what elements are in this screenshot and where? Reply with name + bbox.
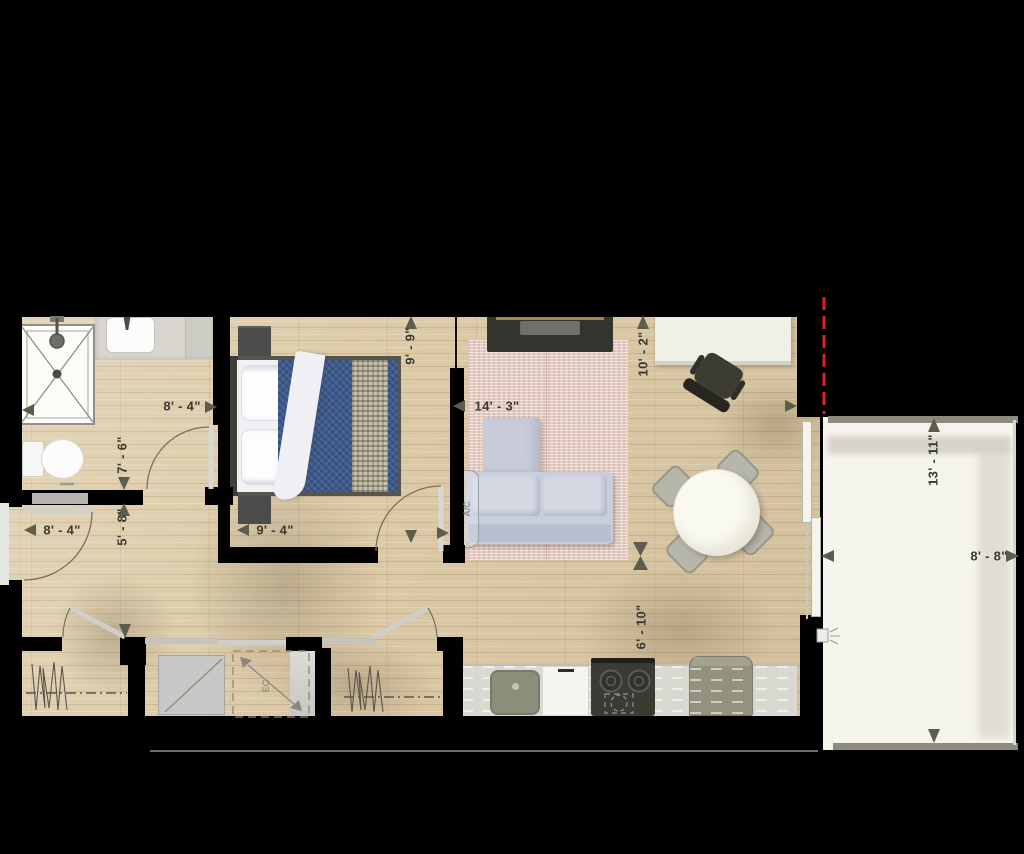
arrow-left-icon	[24, 524, 36, 536]
dim-balcony-length: 13' - 11"	[926, 434, 941, 486]
arrow-right-icon	[1006, 550, 1019, 562]
dim-living-width: 14' - 3"	[475, 399, 520, 414]
arrow-right-icon	[205, 401, 217, 413]
dimension-arrows	[22, 315, 1019, 743]
plant-icon	[641, 701, 649, 709]
closet-door-leaf	[70, 608, 125, 637]
arrow-up-icon	[633, 556, 648, 570]
arrow-down-icon	[118, 477, 130, 490]
dim-living-length: 10' - 2"	[636, 332, 651, 377]
washer-diagonal	[165, 659, 222, 712]
arrow-right-icon	[785, 400, 797, 412]
office-chair	[680, 347, 750, 415]
dim-bathroom-width: 8' - 4"	[163, 399, 200, 414]
arrow-down-icon	[928, 729, 940, 743]
ac-unit-label: A/C	[462, 501, 472, 517]
closet-door-leaf	[373, 608, 428, 637]
closet-door-arc	[63, 608, 70, 637]
arrow-left-icon	[237, 524, 249, 536]
dim-hall-length: 5' - 8"	[115, 508, 130, 545]
closet-door-arc	[428, 608, 437, 637]
dim-bedroom-length: 9' - 9"	[403, 327, 418, 364]
hanging-clothes-icon	[348, 666, 383, 712]
floor-plan: 8' - 4" 7' - 6" 5' - 8" 8' - 4" 9' - 4" …	[0, 0, 1024, 854]
arrow-up-icon	[928, 418, 940, 432]
arrow-left-icon	[821, 550, 834, 562]
plan-linework	[0, 0, 1024, 854]
bedroom-door-arc	[376, 486, 441, 551]
dim-bathroom-length: 7' - 6"	[115, 436, 130, 473]
shower-drain-icon	[53, 370, 62, 379]
hanging-clothes-icon	[32, 662, 67, 710]
appliance-above-label: EC	[261, 680, 271, 693]
dim-kitchen-length: 6' - 10"	[634, 605, 649, 650]
arrow-down-icon	[633, 542, 648, 556]
bathroom-door-arc	[147, 427, 209, 489]
wall-light-icon	[817, 628, 840, 644]
appliance-above-symbol	[233, 651, 309, 717]
arrow-up-icon	[637, 315, 649, 329]
dim-bedroom-width: 9' - 4"	[256, 523, 293, 538]
arrow-left-icon	[453, 400, 465, 412]
arrow-down-icon	[405, 530, 417, 543]
dim-entry-width: 8' - 4"	[43, 523, 80, 538]
dining-table	[673, 469, 760, 556]
dim-balcony-width: 8' - 8"	[970, 549, 1007, 564]
doors	[24, 425, 441, 637]
shower-head-icon	[50, 334, 64, 348]
